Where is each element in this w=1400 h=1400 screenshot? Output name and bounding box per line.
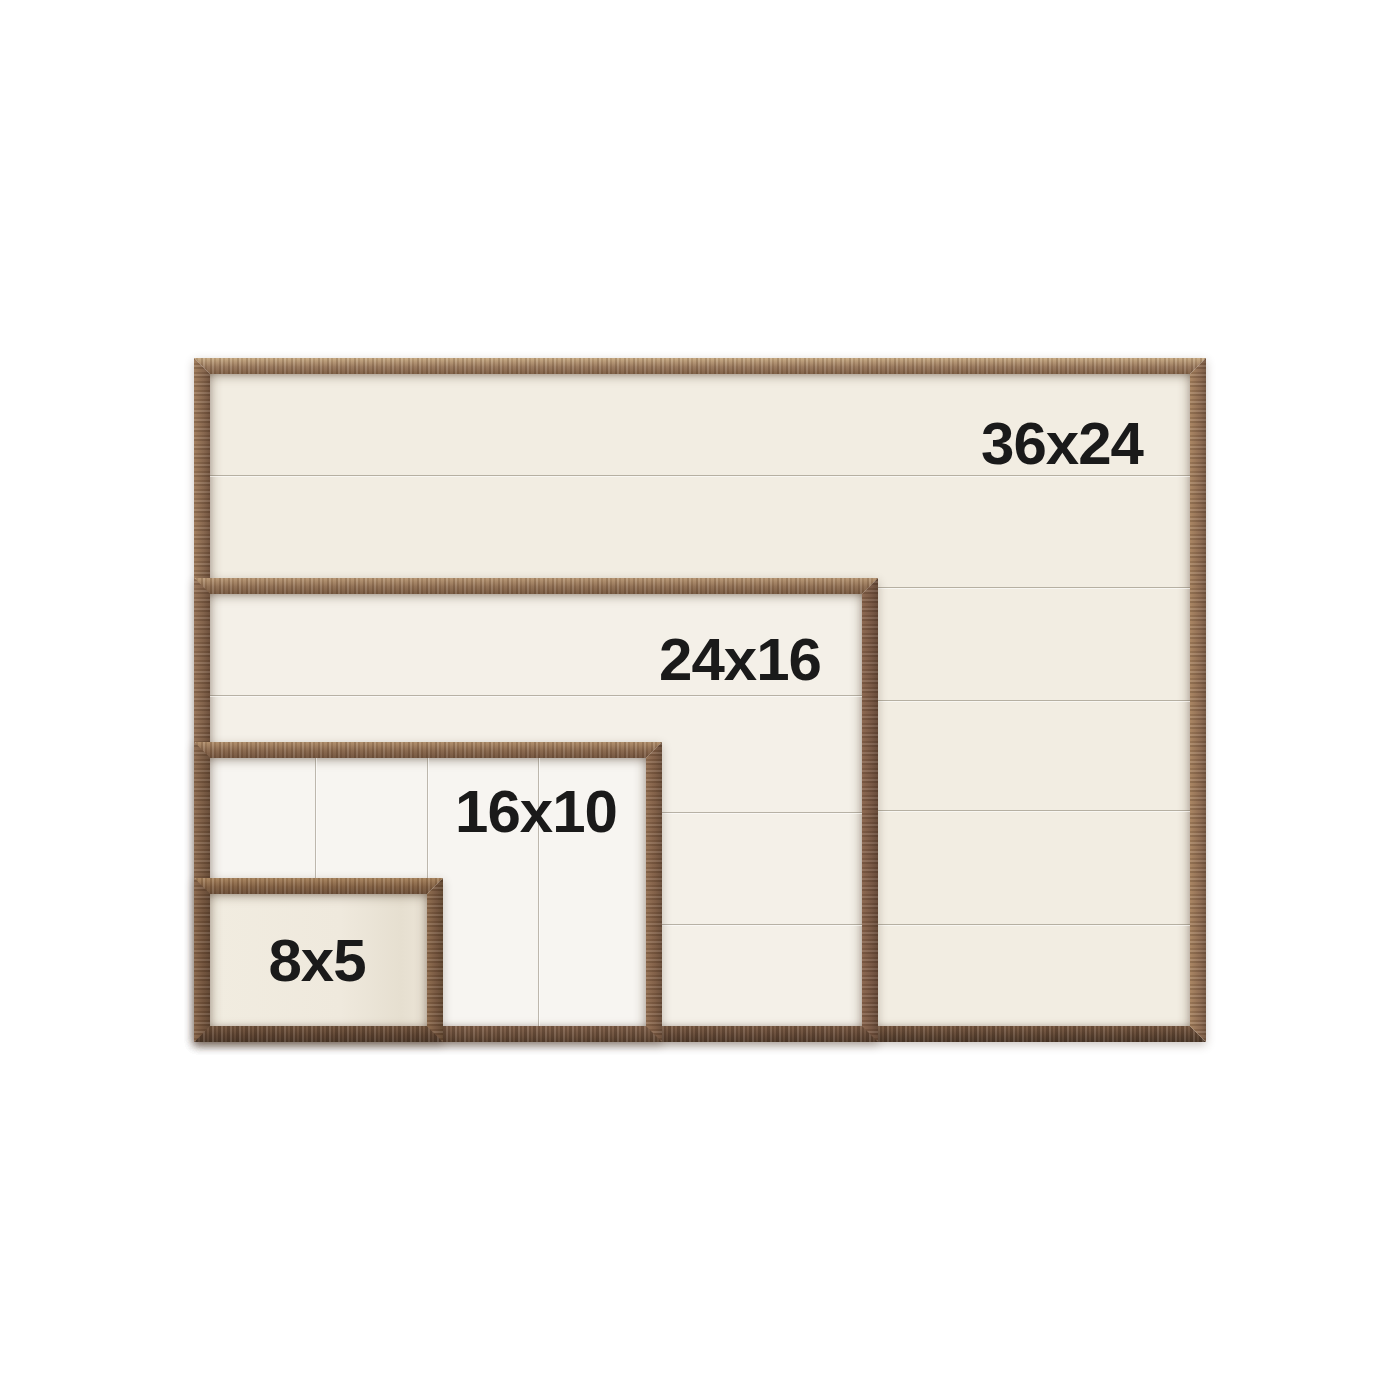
size-label-36x24: 36x24 xyxy=(981,414,1143,474)
size-label-24x16: 24x16 xyxy=(659,630,821,690)
wood-edge-right xyxy=(862,578,878,1042)
wood-edge-top xyxy=(194,358,1206,374)
size-label-8x5: 8x5 xyxy=(268,931,365,991)
wood-edge-right xyxy=(1190,358,1206,1042)
wood-edge-top xyxy=(194,742,662,758)
wood-edge-top xyxy=(194,878,443,894)
shiplap-seam xyxy=(210,695,862,696)
wood-edge-right xyxy=(646,742,662,1042)
frame-8x5: 8x5 xyxy=(194,878,443,1042)
wood-edge-left xyxy=(194,878,210,1042)
wood-edge-right xyxy=(427,878,443,1042)
wood-edge-bottom xyxy=(194,1026,443,1042)
size-label-16x10: 16x10 xyxy=(455,782,617,842)
size-comparison-image: 36x24 24x16 16x10 8x5 xyxy=(0,0,1400,1400)
wood-edge-top xyxy=(194,578,878,594)
